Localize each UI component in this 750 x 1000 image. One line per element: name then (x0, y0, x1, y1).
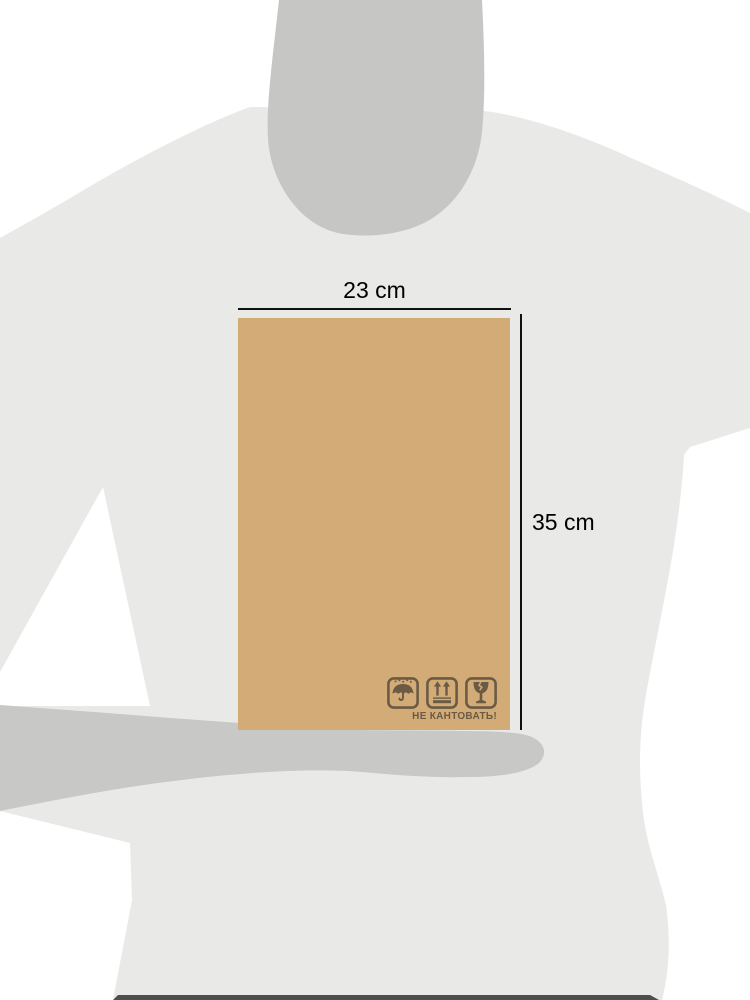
height-label: 35 cm (532, 511, 595, 534)
shirt-hem-strip (113, 995, 659, 1000)
this-side-up-icon (426, 677, 458, 709)
height-dimension-line (520, 314, 522, 730)
keep-dry-icon (387, 677, 419, 709)
width-label: 23 cm (238, 279, 511, 302)
parcel-box: НЕ КАНТОВАТЬ! (238, 318, 510, 730)
background-gap-bottom (0, 811, 132, 1000)
width-dimension-line (238, 308, 511, 310)
fragile-icon (465, 677, 497, 709)
head-silhouette (268, 0, 485, 236)
size-reference-image: НЕ КАНТОВАТЬ! 23 cm 35 cm (0, 0, 750, 1000)
handling-marks: НЕ КАНТОВАТЬ! (387, 677, 497, 722)
handling-icons-row (387, 677, 497, 709)
warning-text: НЕ КАНТОВАТЬ! (412, 712, 497, 722)
